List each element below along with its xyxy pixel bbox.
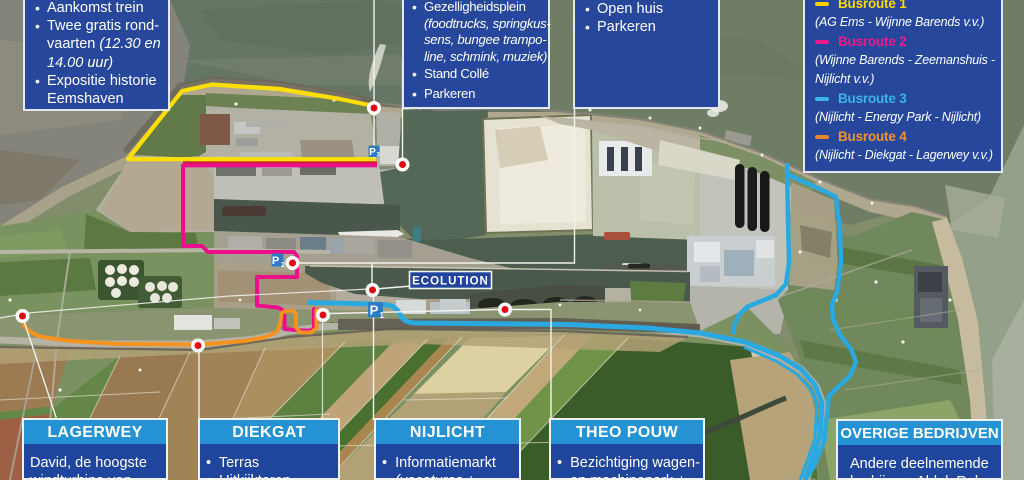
svg-text:P: P <box>272 255 279 267</box>
svg-text:ECOLUTION: ECOLUTION <box>412 276 489 288</box>
svg-text:P: P <box>369 147 376 158</box>
svg-text:P: P <box>370 303 379 318</box>
svg-text:1: 1 <box>380 311 385 320</box>
svg-text:2: 2 <box>281 262 285 269</box>
